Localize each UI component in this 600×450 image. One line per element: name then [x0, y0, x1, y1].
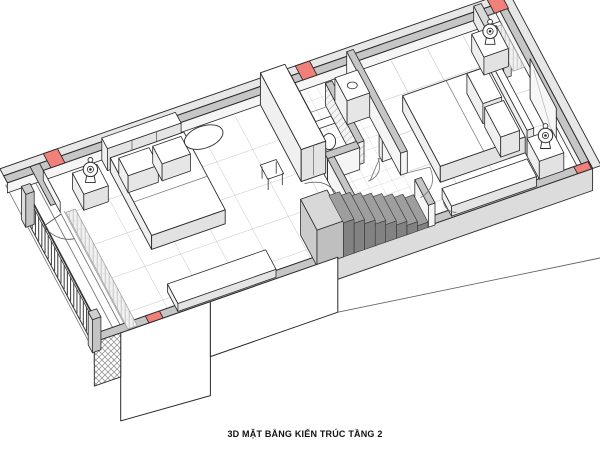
- drawing-caption: 3D MẶT BẰNG KIẾN TRÚC TẦNG 2: [0, 429, 600, 439]
- drawing-sheet: 3D MẶT BẰNG KIẾN TRÚC TẦNG 2: [0, 0, 600, 450]
- floor-plan-3d-axonometric: [0, 0, 600, 450]
